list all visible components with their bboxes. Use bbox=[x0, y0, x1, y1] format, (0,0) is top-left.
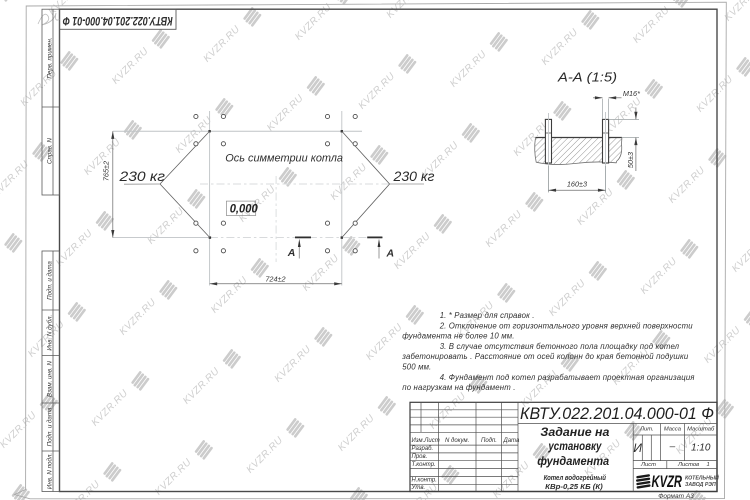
svg-text:KVZR.RU: KVZR.RU bbox=[0, 410, 39, 451]
svg-text:А-А (1:5): А-А (1:5) bbox=[557, 70, 617, 85]
svg-text:установку: установку bbox=[548, 439, 603, 453]
svg-text:KVZR.RU: KVZR.RU bbox=[336, 413, 377, 454]
svg-text:Формат А3: Формат А3 bbox=[658, 493, 694, 500]
svg-text:KVZR.RU: KVZR.RU bbox=[19, 68, 60, 109]
svg-text:KVZR.RU: KVZR.RU bbox=[540, 27, 581, 68]
svg-text:765±2: 765±2 bbox=[102, 161, 111, 181]
svg-text:1. * Размер для справок .: 1. * Размер для справок . bbox=[440, 311, 535, 320]
svg-text:Лит.: Лит. bbox=[639, 427, 654, 433]
svg-text:KVZR.RU: KVZR.RU bbox=[631, 5, 672, 46]
svg-text:KVZR.RU: KVZR.RU bbox=[357, 71, 398, 112]
svg-text:Т.контр.: Т.контр. bbox=[412, 462, 436, 468]
svg-text:KVZR.RU: KVZR.RU bbox=[603, 96, 644, 137]
svg-text:KVZR.RU: KVZR.RU bbox=[385, 0, 426, 21]
svg-text:Изм.Лист: Изм.Лист bbox=[412, 438, 440, 444]
svg-text:KVZR.RU: KVZR.RU bbox=[575, 187, 616, 228]
svg-text:КОТЕЛЬНЫЙ: КОТЕЛЬНЫЙ bbox=[685, 474, 719, 482]
svg-text:Котел водогрейный: Котел водогрейный bbox=[544, 473, 607, 482]
svg-text:KVZR.RU: KVZR.RU bbox=[484, 209, 525, 250]
svg-text:Перв. примен.: Перв. примен. bbox=[47, 37, 54, 78]
svg-text:Листов: Листов bbox=[677, 462, 699, 468]
svg-text:724±2: 724±2 bbox=[265, 275, 285, 284]
svg-text:KVZR.RU: KVZR.RU bbox=[392, 231, 433, 272]
svg-text:А: А bbox=[386, 248, 395, 260]
svg-text:KVZR: KVZR bbox=[652, 472, 683, 491]
svg-text:KVZR.RU: KVZR.RU bbox=[428, 391, 469, 432]
svg-text:KVZR.RU: KVZR.RU bbox=[90, 388, 131, 429]
svg-text:Подп. и дата: Подп. и дата bbox=[47, 407, 54, 446]
svg-text:3. В случае отсутствия бетонно: 3. В случае отсутствия бетонного пола пл… bbox=[440, 342, 680, 351]
svg-text:Инв. N дубл.: Инв. N дубл. bbox=[47, 315, 54, 351]
svg-text:KVZR.RU: KVZR.RU bbox=[174, 115, 215, 156]
svg-text:160±3: 160±3 bbox=[567, 179, 587, 188]
svg-text:1: 1 bbox=[707, 462, 710, 468]
svg-text:Утв.: Утв. bbox=[411, 485, 426, 491]
svg-text:KVZR.RU: KVZR.RU bbox=[265, 93, 306, 134]
svg-text:230 кг: 230 кг bbox=[118, 168, 165, 184]
svg-text:по нагрузкам на фундамент .: по нагрузкам на фундамент . bbox=[402, 383, 515, 392]
svg-text:KVZR.RU: KVZR.RU bbox=[448, 49, 489, 90]
svg-text:KVZR.RU: KVZR.RU bbox=[0, 159, 32, 200]
svg-text:500 мм.: 500 мм. bbox=[402, 363, 431, 372]
svg-text:1:10: 1:10 bbox=[691, 443, 711, 454]
svg-text:Инв. N подл.: Инв. N подл. bbox=[47, 453, 54, 489]
svg-text:KVZR.RU: KVZR.RU bbox=[110, 46, 151, 87]
svg-text:А: А bbox=[287, 247, 296, 259]
svg-text:ЗАВОД РЭП: ЗАВОД РЭП bbox=[685, 482, 716, 488]
svg-text:KVZR.RU: KVZR.RU bbox=[738, 485, 750, 500]
svg-text:KVZR.RU: KVZR.RU bbox=[639, 256, 680, 297]
svg-text:50±3: 50±3 bbox=[626, 152, 635, 168]
svg-text:Лист: Лист bbox=[640, 462, 656, 468]
svg-text:KVZR.RU: KVZR.RU bbox=[301, 253, 342, 294]
svg-text:KVZR.RU: KVZR.RU bbox=[730, 234, 750, 275]
svg-text:КВТУ.022.201.04.000-01 Ф: КВТУ.022.201.04.000-01 Ф bbox=[520, 404, 714, 423]
svg-text:Дата: Дата bbox=[503, 438, 520, 444]
svg-text:КВр-0,25 КБ (К): КВр-0,25 КБ (К) bbox=[545, 482, 603, 491]
svg-text:4. Фундамент под котел разраба: 4. Фундамент под котел разрабатывает про… bbox=[440, 373, 696, 382]
svg-text:KVZR.RU: KVZR.RU bbox=[547, 278, 588, 319]
svg-text:Пров.: Пров. bbox=[412, 454, 428, 460]
svg-text:Взам. инв. N: Взам. инв. N bbox=[47, 360, 54, 397]
svg-text:KVZR.RU: KVZR.RU bbox=[293, 2, 334, 43]
svg-text:Задание на: Задание на bbox=[540, 425, 609, 439]
svg-text:2. Отклонение от горизонтально: 2. Отклонение от горизонтального уровня … bbox=[439, 321, 694, 330]
svg-text:N докум.: N докум. bbox=[445, 438, 469, 444]
svg-text:Масштаб: Масштаб bbox=[687, 427, 715, 433]
svg-text:230 кг: 230 кг bbox=[392, 168, 434, 184]
svg-text:фундамента не более 10 мм.: фундамента не более 10 мм. bbox=[402, 332, 514, 341]
svg-text:KVZR.RU: KVZR.RU bbox=[181, 366, 222, 407]
svg-text:–: – bbox=[669, 442, 676, 453]
svg-text:Ось симметрии котла: Ось симметрии котла bbox=[225, 153, 343, 165]
svg-text:KVZR.RU: KVZR.RU bbox=[695, 74, 736, 115]
svg-text:Подп.: Подп. bbox=[481, 438, 497, 444]
svg-text:KVZR.RU: KVZR.RU bbox=[491, 460, 532, 500]
svg-text:KVZR.RU: KVZR.RU bbox=[329, 162, 370, 203]
svg-text:0,000: 0,000 bbox=[230, 202, 258, 216]
svg-text:KVZR.RU: KVZR.RU bbox=[273, 344, 314, 385]
svg-text:KVZR.RU: KVZR.RU bbox=[364, 322, 405, 363]
svg-text:Масса: Масса bbox=[664, 427, 682, 433]
svg-text:KVZR.RU: KVZR.RU bbox=[146, 206, 187, 247]
svg-text:KVZR.RU: KVZR.RU bbox=[209, 275, 250, 316]
svg-text:Подп. и дата: Подп. и дата bbox=[47, 261, 54, 300]
svg-text:КВТУ.022.201.04.000-01 Ф: КВТУ.022.201.04.000-01 Ф bbox=[63, 14, 173, 26]
svg-text:KVZR.RU: KVZR.RU bbox=[202, 24, 243, 65]
svg-text:KVZR.RU: KVZR.RU bbox=[118, 297, 159, 338]
svg-text:KVZR.RU: KVZR.RU bbox=[0, 250, 4, 291]
svg-text:забетонировать . Расстояние от: забетонировать . Расстояние от осей коло… bbox=[401, 352, 689, 361]
svg-text:фундамента: фундамента bbox=[537, 454, 609, 468]
svg-text:Справ. N: Справ. N bbox=[47, 138, 54, 164]
svg-text:Н.контр.: Н.контр. bbox=[412, 478, 437, 484]
svg-text:KVZR.RU: KVZR.RU bbox=[54, 228, 95, 269]
svg-text:И: И bbox=[633, 441, 642, 455]
svg-text:KVZR.RU: KVZR.RU bbox=[667, 165, 708, 206]
svg-text:Разраб.: Разраб. bbox=[412, 446, 434, 452]
svg-text:М16*: М16* bbox=[623, 89, 641, 98]
svg-text:KVZR.RU: KVZR.RU bbox=[62, 479, 103, 500]
svg-text:KVZR.RU: KVZR.RU bbox=[245, 435, 286, 476]
svg-text:KVZR.RU: KVZR.RU bbox=[702, 325, 743, 366]
